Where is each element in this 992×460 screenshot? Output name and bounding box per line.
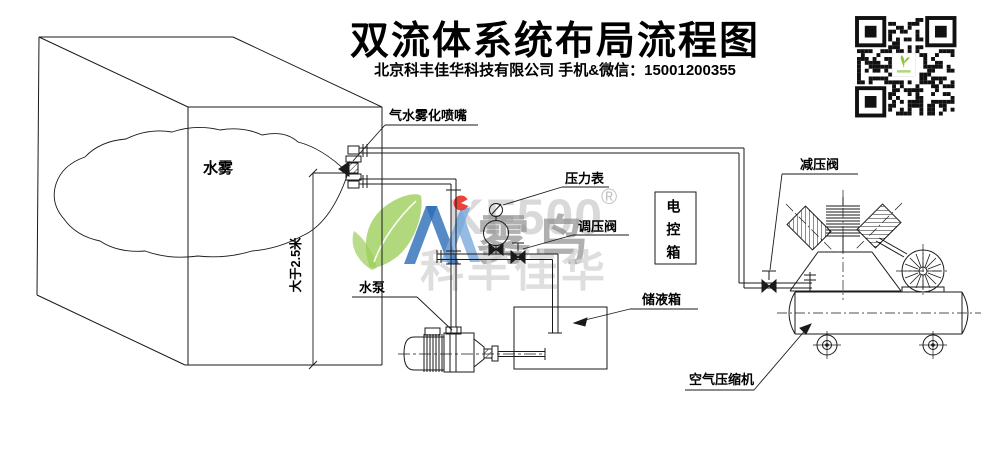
room-box [37, 37, 382, 365]
mist-cloud [54, 127, 347, 257]
water-pump-drawing [398, 327, 545, 372]
water-pipe [359, 179, 461, 327]
label-leaders [352, 125, 858, 390]
qr-code [853, 16, 959, 118]
wheel-icon [813, 331, 841, 359]
control-box-outline [655, 192, 696, 264]
wheel-icon [919, 331, 947, 359]
air-pipe [359, 148, 812, 288]
pressure-gauge-assembly [484, 204, 509, 256]
height-dimension [309, 169, 349, 369]
reducing-valve [762, 271, 816, 292]
flow-diagram [0, 0, 992, 460]
storage-tank [514, 307, 607, 369]
